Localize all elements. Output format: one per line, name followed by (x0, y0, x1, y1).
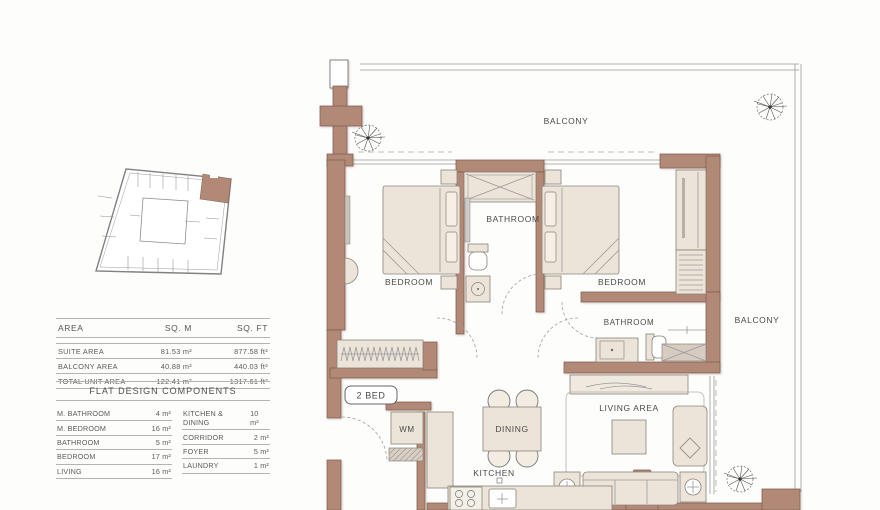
label-bathroom-right: BATHROOM (604, 318, 654, 327)
tall-cabinet (427, 412, 453, 488)
plant-icon (352, 125, 385, 151)
floor-plan: 2 BED BALCONY BALCONY BEDROOM BEDROOM BA… (0, 0, 880, 510)
bathroom-center (464, 172, 536, 302)
wardrobe-left (337, 340, 423, 368)
bed-right (542, 170, 619, 289)
bathroom-right (596, 326, 706, 362)
unit-type-badge: 2 BED (345, 386, 397, 404)
svg-text:2 BED: 2 BED (356, 391, 385, 401)
armchair (673, 406, 707, 466)
mirror-left-wall (345, 196, 350, 244)
label-balcony-top: BALCONY (544, 116, 589, 126)
sink (489, 489, 516, 508)
plant-icon (724, 466, 757, 492)
bed-left (383, 170, 460, 289)
tv-console (570, 375, 688, 394)
label-wm: WM (399, 425, 414, 434)
label-bedroom-right: BEDROOM (598, 277, 646, 287)
stove (450, 487, 482, 510)
label-bedroom-left: BEDROOM (385, 277, 433, 287)
bedside-table-left (345, 258, 358, 284)
label-living: LIVING AREA (599, 403, 659, 413)
plant-icon (754, 94, 787, 120)
label-balcony-right: BALCONY (735, 315, 780, 325)
label-dining: DINING (495, 424, 528, 434)
wardrobe-right (676, 170, 706, 294)
label-bathroom-center: BATHROOM (486, 214, 539, 224)
label-kitchen: KITCHEN (473, 468, 515, 478)
